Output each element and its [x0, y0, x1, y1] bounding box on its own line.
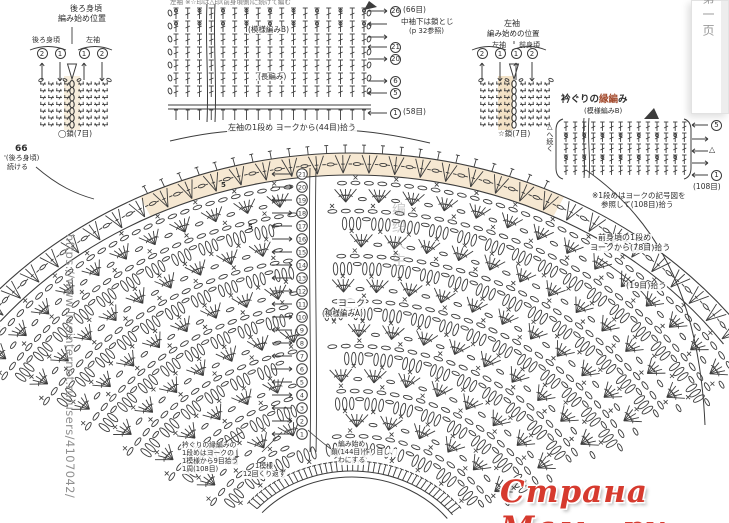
sleeve-row-ref: 21 [390, 42, 401, 53]
svg-text:20: 20 [298, 183, 306, 191]
edging-note-line4: 1周(108目) [181, 466, 219, 474]
svg-text:16: 16 [298, 235, 306, 243]
svg-text:6: 6 [300, 365, 304, 373]
back-continue-line1: '(後ろ身頃) [4, 155, 39, 163]
start-order-number: 2 [97, 48, 108, 59]
pattern-b-label: (模様編みB) [247, 26, 290, 34]
start-order-number: 2 [477, 48, 488, 59]
svg-text:9: 9 [300, 326, 304, 334]
neck-title-mid: 縁編 [599, 94, 618, 105]
sleeve-chart-title-line2: 編み始めの位置 [487, 30, 540, 38]
neck-edging-subtitle: (模様編みB) [584, 108, 622, 116]
dc-label: (長編み) [257, 73, 287, 81]
site-logo-watermark: Страна Мам . ру [500, 474, 729, 523]
svg-text:7: 7 [300, 352, 304, 360]
svg-text:21: 21 [298, 170, 306, 178]
neck-title-pre: 衿ぐりの [561, 94, 599, 105]
start-order-number: 1 [495, 48, 506, 59]
sleeve-row-ref: 20 [390, 54, 401, 65]
svg-text:13: 13 [298, 274, 306, 282]
svg-text:12: 12 [298, 287, 306, 295]
svg-text:8: 8 [300, 339, 304, 347]
url-watermark: https://www.liveinternet.ru/users/410704… [63, 234, 77, 498]
center-faint-watermark: 编织人生 [388, 202, 408, 270]
front-pickup-line2: ヨークから(78目)拾う [589, 244, 671, 253]
stitch-count-a: 5 [221, 182, 226, 190]
svg-text:10: 10 [298, 313, 306, 321]
back-chart-title-line2: 編み始め位置 [58, 15, 106, 24]
svg-text:14: 14 [298, 261, 306, 269]
page-number: 66 [15, 144, 28, 154]
neck-edging-title: 衿ぐりの縁編み [561, 95, 628, 106]
sleeve-chart-chain-label: ☆鎖(7目) [498, 130, 530, 138]
neck-row-ref: 1 [711, 170, 722, 181]
page-tab-label: 第一页 [700, 0, 717, 40]
back-continue-line2: 続ける [7, 164, 28, 172]
stitch-count-b: 5 [248, 224, 253, 232]
front-pickup-line1: 前身頃の1段め [597, 234, 652, 243]
clipped-top-note: 左袖 ※☆印は△印(前身頃側)に続けて編む [170, 0, 291, 5]
sleeve-row-ref-count: (58目) [403, 108, 426, 116]
svg-text:17: 17 [298, 222, 306, 230]
svg-text:5: 5 [300, 378, 304, 386]
pickup-19-label: (19目)拾う [625, 282, 667, 291]
sleeve-chart-title-line1: 左袖 [504, 20, 520, 29]
svg-text:2: 2 [300, 417, 304, 425]
neck-row-ref: 5 [711, 120, 722, 131]
svg-text:3: 3 [300, 404, 304, 412]
yoke-label-line2: (模様編みA) [321, 310, 364, 318]
start-order-number: 2 [37, 48, 48, 59]
underarm-note-line1: 中袖下は鎖とじ [401, 18, 454, 26]
sleeve-row-ref: 1 [390, 108, 401, 119]
sleeve-pickup-label: 左袖の1段め ヨークから(44目)拾う [227, 124, 357, 133]
back-chart-col-left: 後ろ身頃 [32, 37, 60, 45]
start-order-number: 1 [55, 48, 66, 59]
neck-continue-label: △へ続く [545, 123, 553, 152]
start-order-number: 1 [79, 48, 90, 59]
back-chart-col-right: 左袖 [86, 37, 100, 45]
neck-continue-mark: △ [709, 146, 715, 155]
svg-text:18: 18 [298, 209, 306, 217]
sleeve-row-ref: 6 [390, 76, 401, 87]
repeat-note-line2: 12回くり返す [242, 471, 287, 479]
start-order-number: 2 [527, 48, 538, 59]
svg-text:1: 1 [300, 430, 304, 438]
neck-note-line2: 参照して(108目)拾う [601, 201, 673, 209]
svg-text:15: 15 [298, 248, 306, 256]
svg-text:19: 19 [298, 196, 306, 204]
neck-title-post: み [618, 94, 628, 105]
start-order-number: 1 [511, 48, 522, 59]
back-chart-title-line1: 後ろ身頃 [70, 5, 102, 14]
page-tab-button[interactable]: 第一页 [691, 0, 729, 114]
page-tab-scroll-strip[interactable] [721, 1, 728, 113]
sleeve-row-ref-count: (66目) [403, 6, 426, 14]
sleeve-row-ref: 26 [390, 6, 401, 17]
sleeve-row-ref: 5 [390, 88, 401, 99]
back-chart-chain-label: ◯鎖(7目) [58, 130, 92, 138]
yoke-label-line1: ヨーク [337, 299, 366, 309]
svg-text:4: 4 [300, 391, 304, 399]
start-note-line3: わにする [337, 457, 366, 465]
crochet-pattern-page: 212019181716151413121110987654321 後ろ身頃 編… [0, 0, 729, 523]
svg-text:11: 11 [298, 300, 306, 308]
neck-count-label: (108目) [693, 183, 721, 191]
underarm-note-line2: (p 32参照) [409, 28, 444, 36]
